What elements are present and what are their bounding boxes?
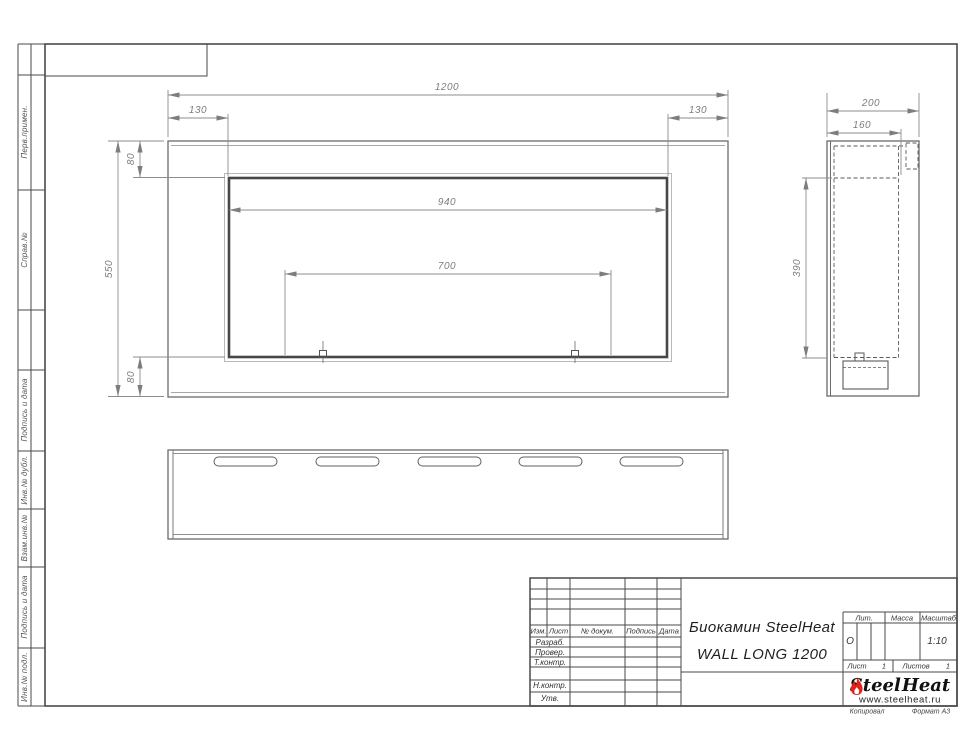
- dim-front-top-offset: 80: [127, 153, 137, 165]
- side-view: [827, 141, 919, 396]
- margin-label-inv-no-podl: Инв.№ подл.: [21, 652, 29, 702]
- dim-front-opening-width: 940: [438, 198, 456, 208]
- bottom-view: [168, 450, 728, 539]
- tb-list-label: Лист: [847, 662, 866, 670]
- dim-front-burner-width: 700: [438, 262, 456, 272]
- footer-kopiroval: Копировал: [850, 708, 885, 715]
- tb-col-izm: Изм.: [531, 627, 547, 635]
- tb-massa-label: Масса: [891, 614, 913, 622]
- drawing-title-line1: Биокамин SteelHeat: [689, 614, 835, 641]
- tb-row-razrab: Разраб.: [536, 639, 565, 647]
- dim-side-opening-height: 390: [793, 259, 803, 277]
- logo-text-heat: Heat: [902, 677, 950, 695]
- tb-row-prover: Провер.: [535, 649, 565, 657]
- tb-masshtab-label: Масштаб: [921, 614, 956, 622]
- tb-col-podpis: Подпись: [626, 627, 656, 635]
- tb-lit-value: О: [846, 637, 854, 647]
- dim-side-inner-depth: 160: [853, 121, 871, 131]
- steelheat-logo: Steel Heat: [850, 677, 951, 695]
- tb-list-value: 1: [882, 662, 886, 670]
- dim-front-right-offset: 130: [689, 106, 707, 116]
- tb-listov-label: Листов: [902, 662, 929, 670]
- margin-label-sprav-no: Справ.№: [21, 232, 29, 268]
- drawing-title-line2: WALL LONG 1200: [689, 641, 835, 668]
- tb-col-data: Дата: [659, 627, 679, 635]
- tb-col-list: Лист: [549, 627, 568, 635]
- tb-col-doc-no: № докум.: [581, 627, 614, 635]
- tb-row-nkontr: Н.контр.: [533, 682, 567, 690]
- drawing-title: Биокамин SteelHeat WALL LONG 1200: [689, 614, 835, 668]
- dim-front-bottom-offset: 80: [127, 371, 137, 383]
- drawing-sheet: Перв.примен. Справ.№ Подпись и дата Инв.…: [0, 0, 970, 749]
- footer-format: Формат А3: [912, 708, 950, 715]
- margin-label-inv-no-dubl: Инв.№ дубл.: [21, 455, 29, 504]
- sheet-frame: [18, 44, 957, 706]
- tb-scale-value: 1:10: [927, 637, 946, 647]
- tb-row-tkontr: Т.контр.: [534, 659, 566, 667]
- dim-side-depth: 200: [862, 99, 880, 109]
- dim-front-height: 550: [105, 260, 115, 278]
- margin-label-podpis-i-data-1: Подпись и дата: [21, 378, 29, 441]
- tb-row-utv: Утв.: [541, 695, 559, 703]
- margin-label-perv-primen: Перв.примен.: [21, 105, 29, 158]
- margin-label-podpis-i-data-2: Подпись и дата: [21, 575, 29, 638]
- tb-listov-value: 1: [946, 662, 950, 670]
- logo-url: www.steelheat.ru: [859, 695, 941, 705]
- tb-lit-label: Лит.: [855, 614, 873, 622]
- dim-front-left-offset: 130: [189, 106, 207, 116]
- flame-icon: [850, 677, 864, 695]
- margin-label-vzam-inv-no: Взам.инв.№: [21, 514, 29, 561]
- dim-front-width: 1200: [435, 83, 459, 93]
